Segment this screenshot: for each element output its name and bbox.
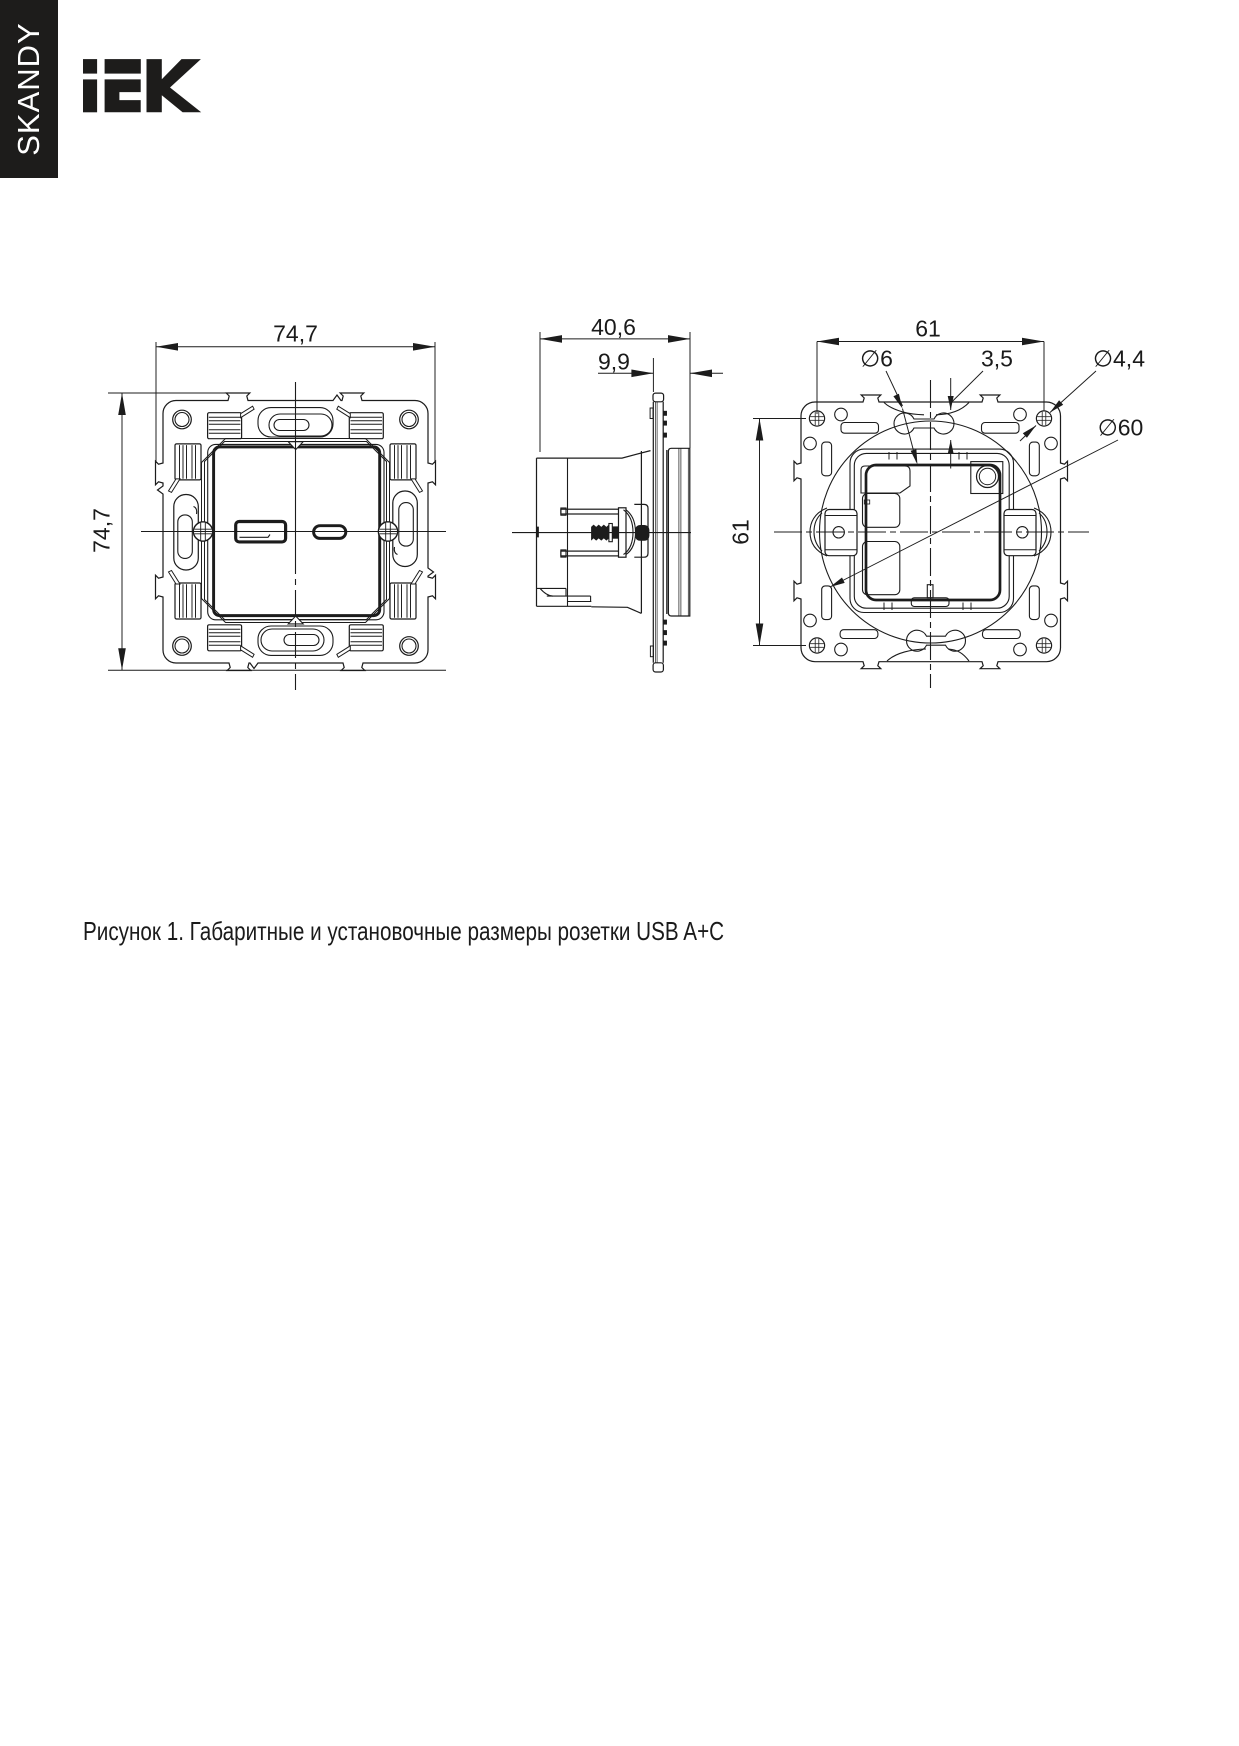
svg-text:61: 61 [915,316,941,342]
svg-text:40,6: 40,6 [591,314,636,340]
svg-text:61: 61 [728,519,754,545]
svg-text:3,5: 3,5 [981,346,1013,372]
svg-text:74,7: 74,7 [273,321,318,347]
svg-text:74,7: 74,7 [89,508,115,553]
svg-text:∅60: ∅60 [1098,415,1144,441]
svg-text:9,9: 9,9 [598,349,630,375]
svg-text:∅6: ∅6 [860,346,893,372]
svg-text:∅4,4: ∅4,4 [1093,346,1145,372]
